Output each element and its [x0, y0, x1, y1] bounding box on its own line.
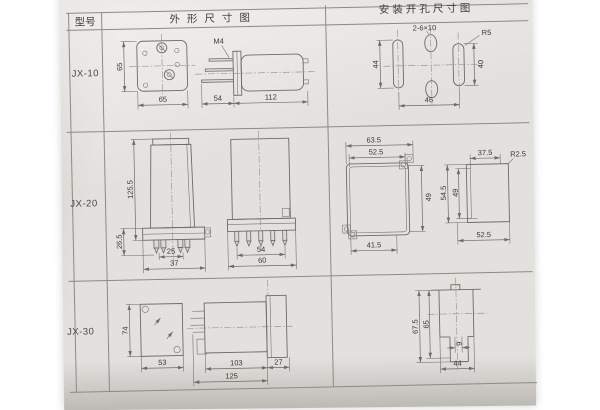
jx20-side-view: 54 60: [226, 130, 297, 270]
radius-label-f2: R2.5: [510, 149, 526, 158]
dim-f2-outer-height: 54.5: [439, 186, 448, 201]
dim-slot-spacing: 46: [425, 95, 434, 104]
slot-count-label: 2-6×10: [413, 23, 437, 32]
dim-f1-outer-width: 63.5: [366, 135, 381, 144]
jx20-outline-drawing: 125.5 26.5 25 37: [107, 129, 330, 279]
dim-height: 125.5: [126, 180, 135, 199]
jx20-mounting-fig1: 63.5 52.5 49 41.5: [341, 134, 434, 255]
dim-pin-length: 54: [214, 94, 223, 103]
thread-label: M4: [213, 37, 224, 46]
dim-front-height: 65: [115, 62, 124, 71]
dim-rear-length: 27: [274, 357, 283, 366]
jx30-front-view: 74 53: [120, 303, 183, 372]
dim-front-height: 74: [121, 326, 130, 335]
dim-flange-width: 37: [170, 259, 179, 268]
dim-f1-inner-width: 52.5: [369, 147, 384, 156]
dim-right-slot-height: 40: [476, 60, 485, 69]
jx20-front-view: 125.5 26.5 25 37: [113, 132, 212, 274]
jx10-outline-drawing: 65 65 M4: [104, 27, 324, 134]
dim-f2-top-width: 37.5: [478, 148, 493, 157]
dim-body-length: 103: [230, 358, 243, 367]
dim-body-length: 112: [265, 92, 277, 101]
dim-base-height: 26.5: [115, 234, 124, 249]
dim-outer-height: 67.5: [411, 319, 420, 334]
dim-f2-inner-height: 49: [451, 188, 460, 197]
header-model: 型号: [69, 14, 101, 30]
dim-front-width: 65: [159, 95, 168, 104]
jx30-side-view: 103 27 125: [186, 279, 294, 386]
jx20-mounting-drawing: 63.5 52.5 49 41.5 3: [334, 125, 532, 271]
jx30-mounting-drawing: 67.5 65 9 44: [397, 272, 534, 393]
dim-f1-bottom-width: 41.5: [367, 240, 382, 249]
dim-inner-height: 65: [422, 320, 431, 329]
dim-f1-height: 49: [424, 193, 433, 202]
dim-total-length: 125: [225, 371, 238, 380]
header-mounting: 安装开孔尺寸图: [327, 0, 525, 18]
model-label-jx20: JX-20: [66, 198, 102, 210]
dimension-table: 型号 外形尺寸图 安装开孔尺寸图 JX-10 JX-20 JX-30: [0, 0, 600, 406]
dim-side-pin-span: 54: [257, 245, 266, 254]
dim-front-width: 53: [158, 358, 167, 367]
jx10-mounting-drawing: 2-6×10 R5 44 40 46: [336, 19, 528, 125]
model-label-jx10: JX-10: [67, 68, 103, 80]
model-label-jx30: JX-30: [63, 326, 99, 338]
dim-f2-bottom-width: 52.5: [476, 230, 491, 239]
jx30-outline-drawing: 74 53 103: [110, 278, 332, 391]
dim-notch-width: 9: [455, 342, 464, 346]
jx10-side-view: M4 54 112: [195, 35, 316, 108]
jx20-mounting-fig2: 37.5 R2.5 54.5 49 52.5: [438, 147, 528, 245]
radius-label: R5: [482, 28, 492, 37]
jx10-front-view: 65 65: [115, 33, 197, 110]
photo-of-datasheet: 型号 外形尺寸图 安装开孔尺寸图 JX-10 JX-20 JX-30: [0, 0, 600, 400]
dim-bottom-width: 44: [453, 359, 462, 368]
dim-side-width: 60: [258, 256, 267, 265]
dim-left-slot-height: 44: [371, 60, 380, 69]
dim-pin-span: 25: [167, 247, 176, 256]
